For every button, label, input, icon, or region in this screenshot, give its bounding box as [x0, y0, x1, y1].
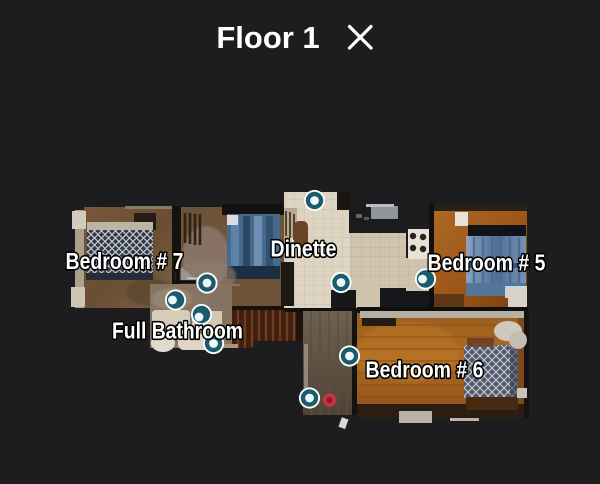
- svg-text:Bedroom # 7: Bedroom # 7: [66, 248, 184, 274]
- svg-text:Full Bathroom: Full Bathroom: [112, 318, 243, 344]
- svg-text:Floor 1: Floor 1: [216, 20, 319, 55]
- svg-text:Bedroom # 6: Bedroom # 6: [366, 357, 484, 383]
- svg-text:Dinette: Dinette: [271, 236, 337, 262]
- svg-text:Bedroom # 5: Bedroom # 5: [428, 250, 546, 276]
